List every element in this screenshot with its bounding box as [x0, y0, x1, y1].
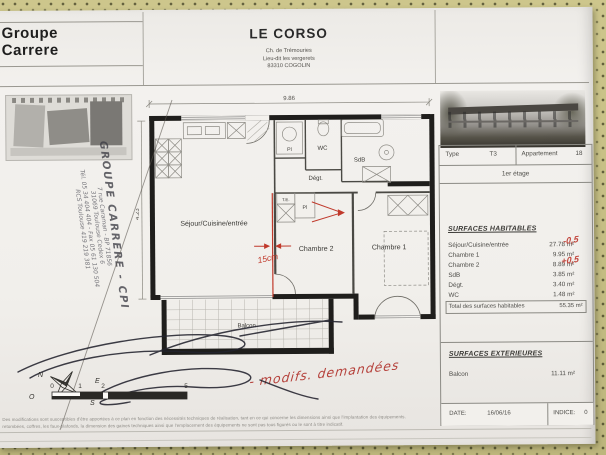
room-label-pl-top: Pl — [287, 147, 292, 153]
room-label-sdb: SdB — [354, 158, 365, 164]
company-logo-text: Groupe Carrere — [2, 25, 59, 59]
entry-hatch — [247, 120, 269, 142]
windows — [159, 114, 422, 321]
type-apartment-row: Type T3 Appartement 18 — [439, 145, 591, 166]
room-label-sejour: Séjour/Cuisine/entrée — [180, 220, 247, 227]
header-rule-top-left — [0, 21, 143, 23]
surfaces-habitables-title: SURFACES HABITABLES — [448, 225, 536, 233]
kitchen-units — [155, 122, 245, 178]
red-note-plus: +0,5 — [561, 254, 579, 267]
chambre1-door-arc — [358, 192, 376, 210]
sh-total-value: 55.35 m² — [559, 303, 582, 309]
sh-total-row: Total des surfaces habitables 55.35 m² — [446, 300, 587, 314]
sh-row-label: SdB — [448, 272, 460, 279]
room-label-te: T.E. — [282, 197, 290, 202]
info-panel: Type T3 Appartement 18 1er étage SURFACE… — [438, 144, 594, 426]
floor-plan-drawing: 9.86 4.23 — [135, 81, 439, 383]
date-value: 16/06/16 — [487, 411, 510, 417]
balcon-label: Balcon — [449, 371, 468, 378]
type-label: Type — [445, 151, 459, 158]
bathroom-fixtures — [276, 119, 394, 183]
room-label-chambre2: Chambre 2 — [299, 246, 334, 253]
dimension-height-label: 4.23 — [135, 208, 141, 220]
surfaces-exterieures-section: SURFACES EXTERIEURES Balcon 11.11 m² — [441, 341, 593, 403]
project-address: Ch. de Trémouries Lieu-dit les vergerets… — [143, 47, 435, 72]
building-rendering-thumbnail — [440, 90, 585, 148]
surfaces-habitables-section: SURFACES HABITABLES Séjour/Cuisine/entré… — [440, 183, 593, 342]
type-value: T3 — [489, 151, 496, 158]
paper-sheet: Groupe Carrere LE CORSO Ch. de Trémourie… — [0, 7, 596, 448]
photo-of-floorplan-document: { "header": { "company_line1": "Groupe",… — [0, 0, 606, 455]
project-title: LE CORSO — [143, 25, 435, 42]
date-label: DATE: — [449, 411, 466, 417]
sh-row-label: Dégt. — [448, 282, 463, 289]
interior-walls — [274, 119, 430, 294]
sh-row-label: Chambre 1 — [448, 252, 479, 259]
sh-row-label: Séjour/Cuisine/entrée — [448, 242, 509, 249]
room-label-balcon: Balcon — [237, 323, 255, 329]
room-label-degt: Dégt. — [308, 176, 323, 182]
dimension-width-label: 9.86 — [283, 96, 295, 102]
indice-label: INDICE: — [553, 410, 575, 416]
balcon-value: 11.11 m² — [519, 370, 575, 377]
company-line1: Groupe — [2, 25, 59, 42]
sh-row-label: Chambre 2 — [448, 262, 479, 269]
room-label-chambre1: Chambre 1 — [372, 244, 407, 251]
chambre2-door-arc — [275, 274, 295, 294]
room-label-wc: WC — [317, 146, 328, 152]
chambre1-furniture — [384, 195, 429, 285]
exterior-walls — [149, 114, 435, 321]
indice-value: 0 — [584, 410, 587, 416]
address-line3: 83310 COGOLIN — [143, 62, 435, 72]
sh-row-value: 3.85 m² — [518, 271, 574, 278]
surfaces-exterieures-title: SURFACES EXTERIEURES — [449, 350, 543, 358]
company-line2: Carrere — [2, 42, 59, 59]
sh-total-label: Total des surfaces habitables — [449, 303, 525, 310]
date-indice-row: DATE: 16/06/16 INDICE: 0 — [441, 402, 593, 426]
sh-row-value: 1.48 m² — [518, 291, 574, 298]
header-rule-bottom-left — [0, 65, 143, 67]
apartment-value: 18 — [575, 150, 582, 157]
sh-row-label: WC — [448, 292, 459, 299]
floor-row: 1er étage — [440, 165, 592, 184]
apartment-label: Appartement — [521, 150, 557, 157]
red-note-minus: -0,5 — [563, 234, 579, 246]
sh-row-value: 3.40 m² — [518, 281, 574, 288]
room-label-pl-ch2: Pl — [303, 205, 308, 211]
